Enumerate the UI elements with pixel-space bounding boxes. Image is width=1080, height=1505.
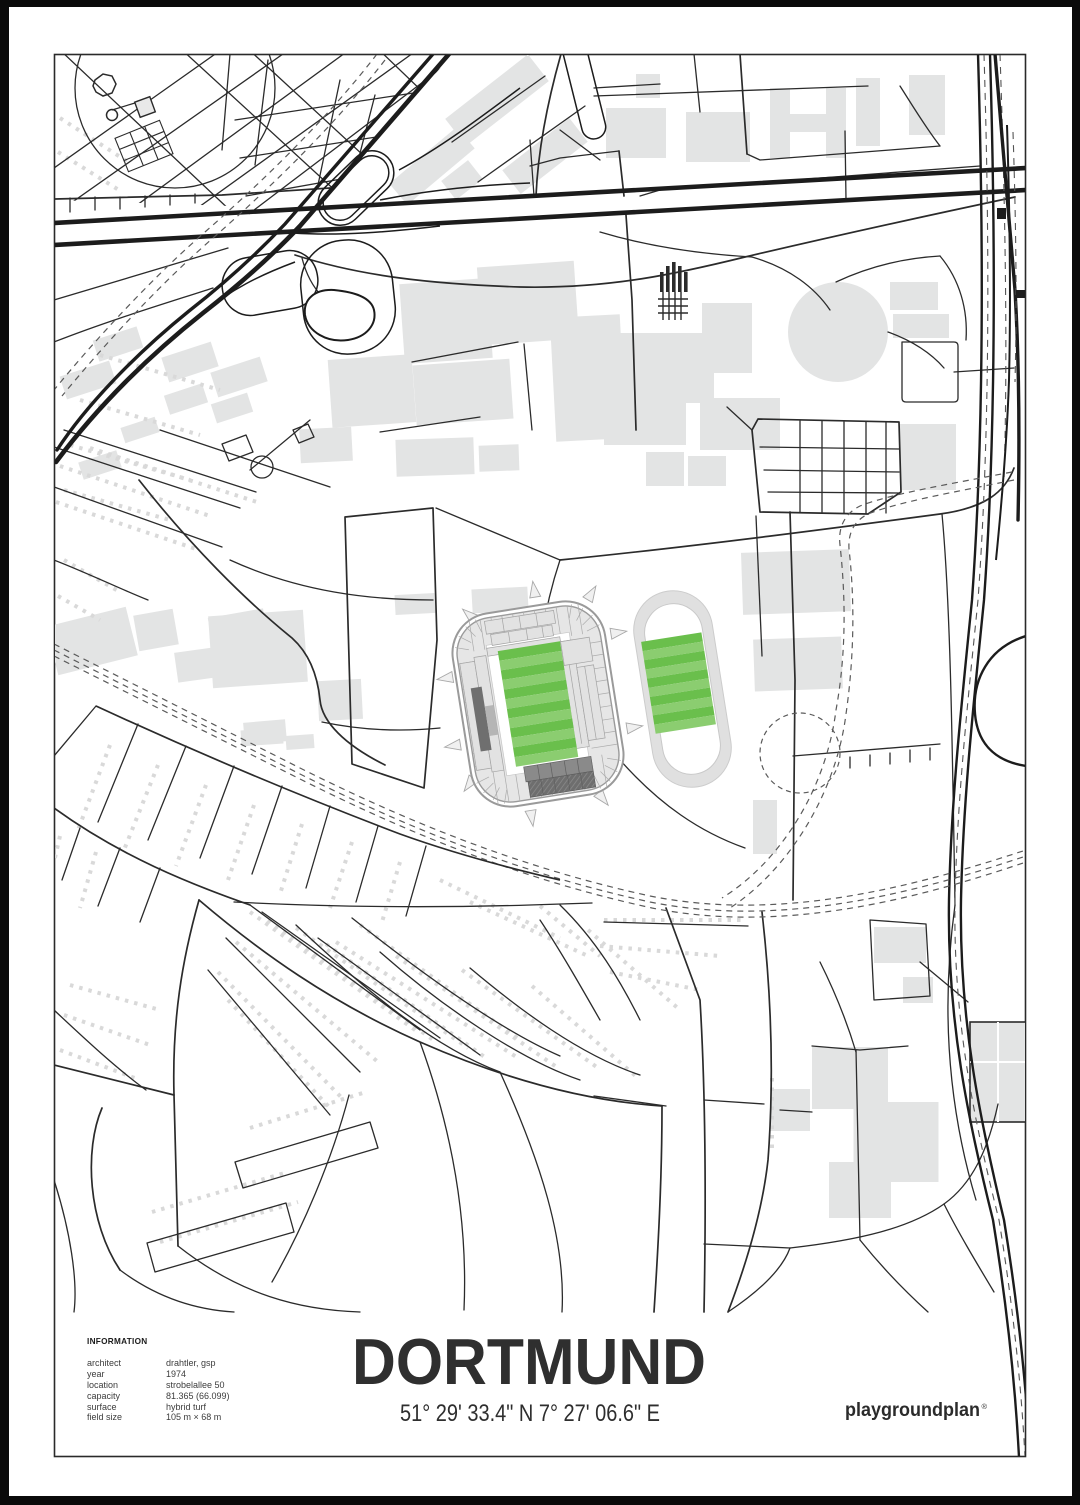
svg-text:INFORMATION: INFORMATION [87, 1337, 147, 1346]
svg-text:surface: surface [87, 1402, 117, 1412]
svg-text:DORTMUND: DORTMUND [352, 1325, 706, 1398]
svg-text:51° 29' 33.4" N 7° 27' 06.6": 51° 29' 33.4" N 7° 27' 06.6" E [400, 1400, 660, 1427]
svg-text:1974: 1974 [166, 1369, 186, 1379]
svg-text:drahtler, gsp: drahtler, gsp [166, 1358, 216, 1368]
svg-text:105 m × 68 m: 105 m × 68 m [166, 1412, 221, 1422]
svg-text:playgroundplan: playgroundplan [845, 1399, 980, 1421]
svg-text:®: ® [982, 1402, 988, 1411]
svg-text:location: location [87, 1380, 118, 1390]
svg-text:hybrid turf: hybrid turf [166, 1402, 207, 1412]
svg-text:capacity: capacity [87, 1391, 121, 1401]
svg-text:strobelallee 50: strobelallee 50 [166, 1380, 225, 1390]
svg-text:year: year [87, 1369, 105, 1379]
svg-text:81.365 (66.099): 81.365 (66.099) [166, 1391, 230, 1401]
svg-text:architect: architect [87, 1358, 122, 1368]
svg-text:field size: field size [87, 1412, 122, 1422]
